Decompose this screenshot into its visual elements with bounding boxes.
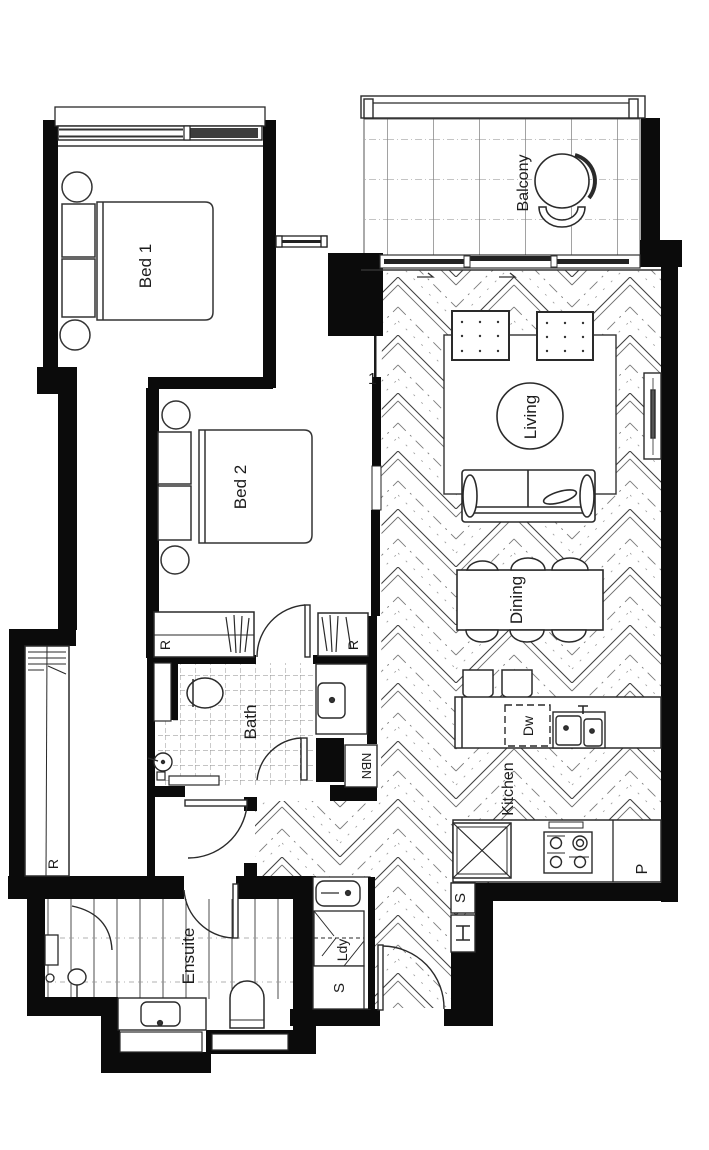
- svg-text:S: S: [452, 893, 469, 903]
- svg-text:Balcony: Balcony: [515, 155, 532, 212]
- svg-text:NBN: NBN: [359, 753, 373, 779]
- svg-text:Ensuite: Ensuite: [179, 928, 198, 985]
- svg-text:R: R: [157, 640, 173, 650]
- svg-text:Bed 2: Bed 2: [231, 465, 250, 509]
- svg-text:Kitchen: Kitchen: [500, 762, 517, 815]
- svg-text:Ldy: Ldy: [334, 939, 350, 962]
- svg-text:Dining: Dining: [507, 576, 526, 624]
- svg-text:Bath: Bath: [241, 705, 260, 740]
- svg-text:Bed 1: Bed 1: [136, 244, 155, 288]
- svg-text:R: R: [45, 859, 61, 869]
- svg-text:S: S: [331, 983, 348, 993]
- svg-text:Living: Living: [521, 395, 540, 439]
- svg-text:R: R: [345, 640, 361, 650]
- svg-text:1: 1: [368, 371, 377, 388]
- svg-text:Dw: Dw: [520, 715, 536, 736]
- svg-text:P: P: [634, 864, 651, 875]
